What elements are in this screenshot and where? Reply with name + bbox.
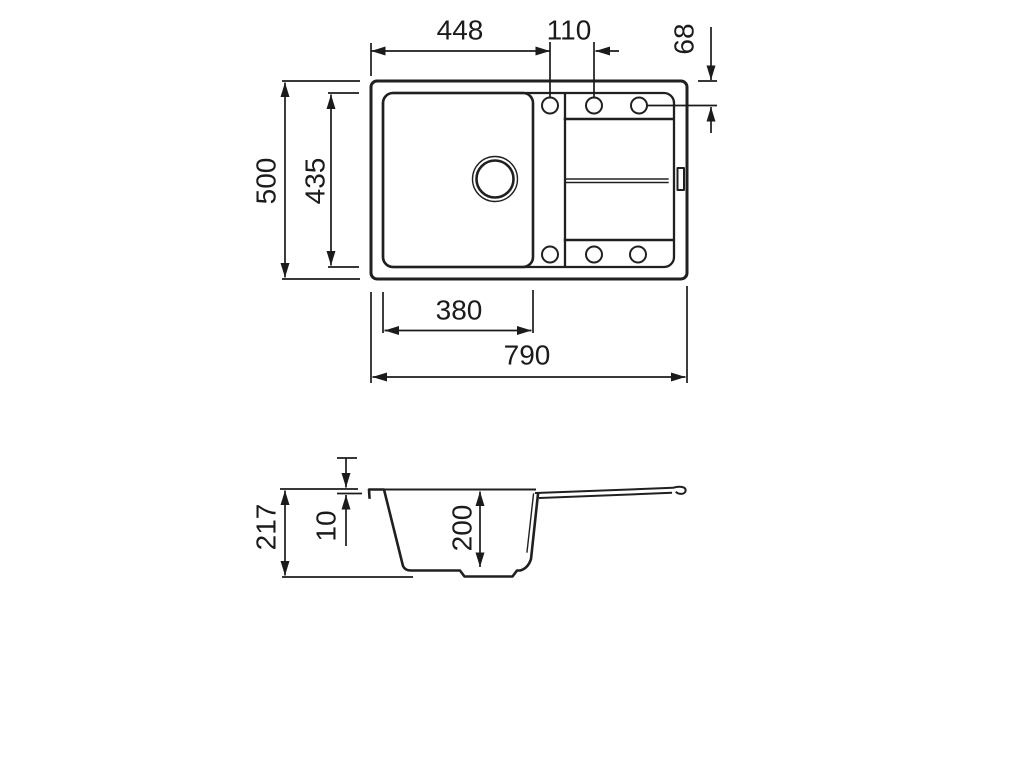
technical-drawing-page: 448 110 68 500 435 380 790 — [0, 0, 1024, 768]
overflow-slot — [678, 168, 685, 190]
dim-110-label: 110 — [547, 15, 592, 46]
sink-outer-edge — [371, 81, 687, 279]
dim-448-label: 448 — [437, 15, 484, 46]
dim-435-label: 435 — [300, 158, 331, 205]
faucet-holes-top-row — [542, 98, 647, 114]
drainboard-ribs — [565, 179, 668, 183]
sink-dimension-drawing: 448 110 68 500 435 380 790 — [0, 0, 1024, 768]
dim-790-label: 790 — [504, 340, 551, 371]
side-view — [369, 487, 686, 577]
top-view — [371, 81, 687, 279]
faucet-hole — [586, 98, 602, 114]
drainboard-bottom-surface-line — [540, 493, 671, 498]
dim-500-label: 500 — [251, 158, 282, 205]
faucet-hole — [631, 98, 647, 114]
bowl-outline — [383, 93, 533, 267]
dimension-200: 200 — [447, 492, 481, 568]
faucet-hole — [630, 247, 646, 263]
dimension-110: 110 — [547, 15, 619, 98]
dim-217-label: 217 — [251, 504, 282, 551]
faucet-holes-bottom-row — [542, 247, 646, 263]
dimension-10: 10 — [311, 458, 363, 546]
dim-10-label: 10 — [311, 510, 342, 541]
dim-200-label: 200 — [447, 505, 478, 552]
drain-outer-ring — [473, 157, 518, 202]
dimension-790: 790 — [371, 286, 687, 383]
dimension-68: 68 — [647, 23, 717, 133]
drain-inner-ring — [477, 161, 514, 198]
dimension-380: 380 — [383, 290, 533, 333]
dimension-448: 448 — [371, 15, 550, 98]
faucet-hole — [542, 98, 558, 114]
drain-circle — [473, 157, 518, 202]
dim-68-label: 68 — [669, 23, 700, 54]
dim-380-label: 380 — [436, 295, 483, 326]
faucet-hole — [586, 247, 602, 263]
dimension-435: 435 — [300, 93, 360, 267]
faucet-hole — [542, 247, 558, 263]
